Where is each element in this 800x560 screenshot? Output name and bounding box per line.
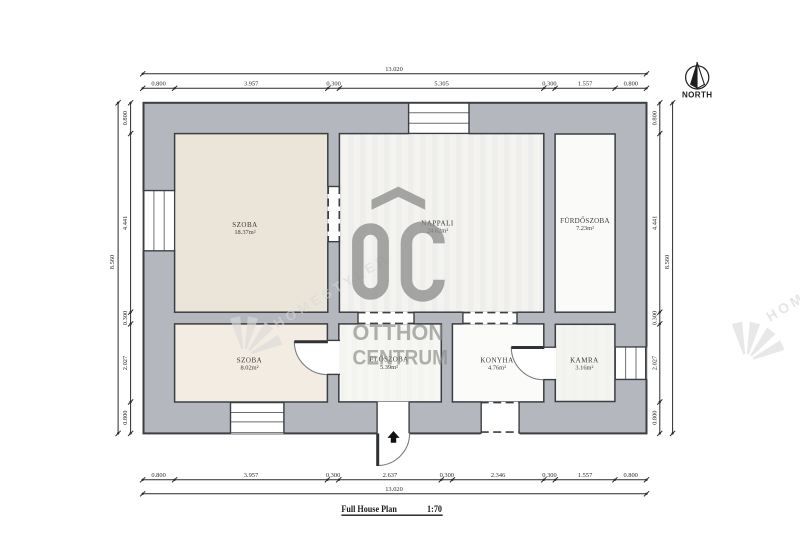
svg-text:13.020: 13.020 [385, 66, 403, 73]
svg-text:0.800: 0.800 [122, 411, 129, 425]
svg-text:1.557: 1.557 [578, 472, 593, 479]
svg-text:0.800: 0.800 [624, 81, 638, 88]
svg-text:3.957: 3.957 [244, 472, 259, 479]
svg-text:3.16m²: 3.16m² [575, 364, 593, 371]
svg-text:SZOBA: SZOBA [237, 356, 262, 364]
svg-text:18.37m²: 18.37m² [234, 229, 255, 236]
svg-text:0.800: 0.800 [624, 472, 638, 479]
svg-text:0.300: 0.300 [651, 311, 658, 325]
svg-text:0.800: 0.800 [651, 411, 658, 425]
svg-text:0.300: 0.300 [542, 81, 556, 88]
svg-text:8.02m²: 8.02m² [240, 365, 258, 372]
svg-text:HOMESTYLER: HOMESTYLER [763, 244, 800, 324]
svg-text:0.800: 0.800 [151, 81, 165, 88]
svg-text:0.300: 0.300 [122, 311, 129, 325]
svg-text:NORTH: NORTH [682, 91, 712, 100]
svg-text:8.560: 8.560 [109, 255, 116, 269]
svg-text:13.020: 13.020 [385, 486, 403, 493]
svg-text:1:70: 1:70 [427, 504, 442, 515]
svg-text:0.800: 0.800 [151, 472, 165, 479]
svg-text:5.305: 5.305 [434, 81, 448, 88]
svg-text:2.027: 2.027 [122, 355, 129, 370]
svg-text:KAMRA: KAMRA [570, 356, 599, 364]
svg-text:0.800: 0.800 [122, 111, 129, 125]
svg-text:3.957: 3.957 [244, 81, 259, 88]
svg-text:OTTHON: OTTHON [353, 320, 445, 345]
svg-text:2.637: 2.637 [383, 472, 398, 479]
svg-text:2.346: 2.346 [491, 472, 505, 479]
svg-text:7.23m²: 7.23m² [576, 225, 594, 232]
svg-text:Full House Plan: Full House Plan [341, 504, 397, 515]
svg-text:1.557: 1.557 [578, 81, 593, 88]
svg-text:4.441: 4.441 [651, 216, 658, 230]
svg-text:0.800: 0.800 [651, 111, 658, 125]
svg-text:4.441: 4.441 [122, 216, 129, 230]
svg-text:2.027: 2.027 [651, 355, 658, 370]
svg-text:KONYHA: KONYHA [480, 356, 513, 364]
svg-text:4.76m²: 4.76m² [488, 364, 506, 371]
svg-text:0.300: 0.300 [440, 472, 454, 479]
svg-text:FÜRDŐSZOBA: FÜRDŐSZOBA [560, 217, 610, 225]
svg-text:CENTRUM: CENTRUM [353, 346, 449, 369]
svg-text:0.300: 0.300 [326, 81, 340, 88]
svg-text:8.560: 8.560 [664, 255, 671, 269]
svg-text:0.300: 0.300 [542, 472, 556, 479]
svg-text:0.300: 0.300 [326, 472, 340, 479]
